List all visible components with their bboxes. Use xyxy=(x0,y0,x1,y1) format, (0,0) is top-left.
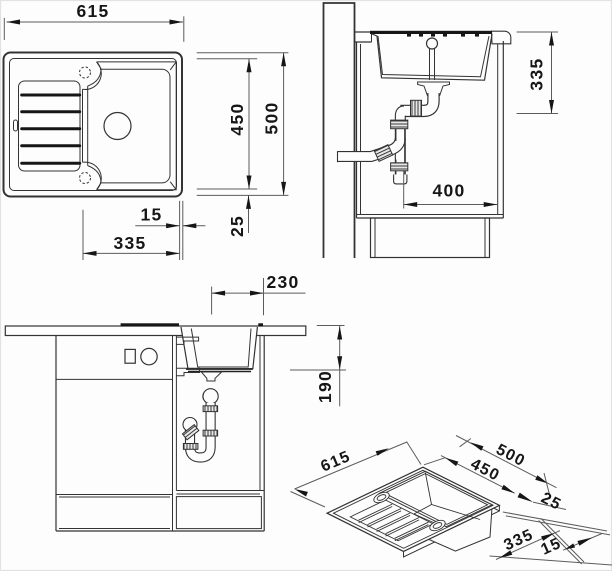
svg-text:450: 450 xyxy=(227,102,247,135)
svg-text:190: 190 xyxy=(315,370,335,403)
svg-text:25: 25 xyxy=(227,215,247,237)
svg-text:335: 335 xyxy=(527,57,547,90)
svg-text:615: 615 xyxy=(76,1,109,21)
svg-text:335: 335 xyxy=(113,233,146,253)
svg-text:230: 230 xyxy=(266,272,299,292)
svg-text:500: 500 xyxy=(262,101,282,134)
svg-text:15: 15 xyxy=(140,205,162,225)
svg-text:400: 400 xyxy=(432,181,465,201)
